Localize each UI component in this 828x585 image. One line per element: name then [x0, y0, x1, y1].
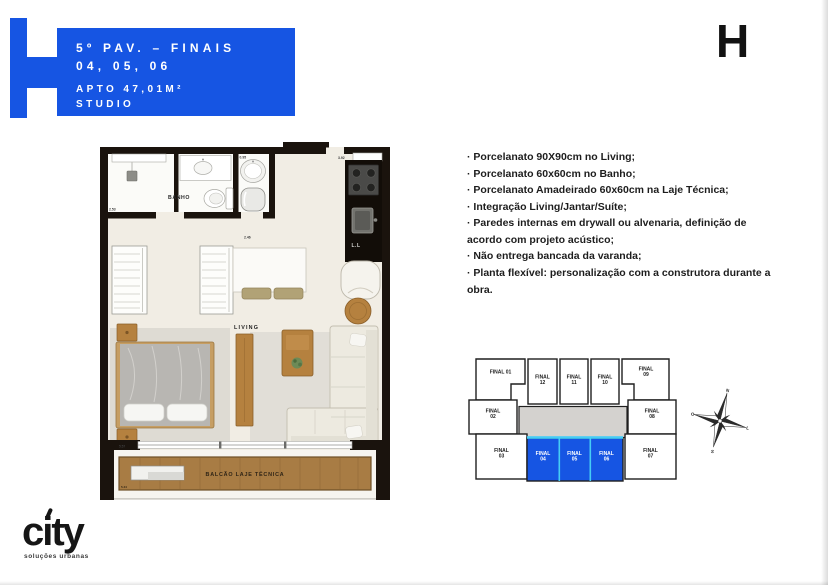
- keyplan-unit-final-11: FINAL11: [560, 359, 588, 404]
- spec-item: · Integração Living/Jantar/Suíte;: [467, 199, 779, 216]
- lounge-chair: [341, 261, 380, 299]
- apartment-area: APTO 47,01M²: [76, 82, 295, 97]
- shower-ledge: [112, 154, 166, 162]
- spec-item: · Não entrega bancada da varanda;: [467, 248, 779, 265]
- balcony-label: BALCÃO LAJE TÉCNICA: [206, 470, 285, 478]
- floorplan: BANHO L.L: [100, 142, 390, 507]
- svg-text:FINAL 01: FINAL 01: [490, 370, 512, 376]
- living-label: LIVING: [234, 325, 259, 331]
- apartment-type: STUDIO: [76, 97, 295, 112]
- page-edge-shadow-bottom: [0, 581, 828, 585]
- bath-sink-icon: [180, 156, 231, 181]
- pillow: [167, 404, 207, 421]
- nightstand: [117, 324, 137, 341]
- dining-chair: [242, 288, 271, 299]
- spec-list: · Porcelanato 90X90cm no Living; · Porce…: [467, 149, 779, 298]
- compass-south-label: S: [710, 449, 714, 455]
- dim-bath: 2.53: [109, 208, 116, 212]
- keyplan-unit-final-08: FINAL08: [628, 400, 676, 434]
- water-heater-icon: [241, 188, 265, 211]
- spec-item: · Planta flexível: personalização com a …: [467, 265, 779, 298]
- bathroom-label: BANHO: [168, 195, 190, 201]
- h-logo: H: [716, 18, 749, 64]
- pillow: [124, 404, 164, 421]
- spec-item: · Porcelanato 90X90cm no Living;: [467, 149, 779, 166]
- keyplan-corridor: [519, 407, 627, 438]
- kitchen-counter: L.L: [345, 160, 382, 262]
- units-title: 04, 05, 06: [76, 57, 295, 75]
- spec-item: · Porcelanato 60x60cm no Banho;: [467, 166, 779, 183]
- page: 5º PAV. – FINAIS 04, 05, 06 APTO 47,01M²…: [0, 0, 828, 585]
- city-logo-tagline: soluções urbanas: [22, 553, 142, 560]
- keyplan-divider: [590, 438, 592, 481]
- living-window: [100, 440, 390, 450]
- dim-laundry-bottom: 2.46: [244, 236, 251, 240]
- dining-table: [233, 248, 306, 292]
- city-logo-text: city: [22, 512, 142, 552]
- tv-console: [236, 334, 253, 426]
- throw-pillow: [345, 425, 363, 439]
- keyplan-unit-final-07: FINAL07: [625, 434, 676, 479]
- keyplan-unit-final-09: FINAL09: [622, 359, 669, 400]
- keyplan: FINAL 01 FINAL12 FINAL11 FINAL10 FINAL09…: [465, 351, 680, 486]
- city-h-mark-bar: [10, 18, 27, 118]
- cooktop-icon: [349, 165, 379, 195]
- keyplan-unit-final-03: FINAL03: [476, 434, 527, 479]
- round-table: [345, 298, 371, 324]
- page-edge-shadow-right: [821, 0, 828, 585]
- toilet-icon: [204, 188, 233, 209]
- dining-chair: [274, 288, 303, 299]
- laundry-basin-icon: [241, 160, 266, 183]
- keyplan-unit-final-10: FINAL10: [591, 359, 619, 404]
- spec-item: · Porcelanato Amadeirado 60x60cm na Laje…: [467, 182, 779, 199]
- floor-title: 5º PAV. – FINAIS: [76, 39, 295, 57]
- dim-kitchen: 3.92: [338, 156, 345, 160]
- keyplan-highlight-topstrip: [527, 436, 623, 439]
- compass-north-label: N: [725, 388, 729, 393]
- balcony: BALCÃO LAJE TÉCNICA: [100, 450, 390, 500]
- title-card: 5º PAV. – FINAIS 04, 05, 06 APTO 47,01M²…: [57, 28, 295, 116]
- coffee-table: [282, 330, 313, 376]
- city-h-mark-stub: [26, 57, 58, 88]
- compass-east-label: L: [746, 425, 750, 431]
- throw-pillow: [349, 333, 367, 347]
- dim-balcony: 5.44: [121, 485, 127, 489]
- keyplan-unit-final-02: FINAL02: [469, 400, 517, 434]
- kitchen-ledge: [353, 153, 382, 161]
- entry-door: [283, 142, 329, 148]
- dim-laundry-top: 0.95: [240, 156, 247, 160]
- ac-unit-icon: [131, 466, 184, 480]
- dim-living: 5.57: [119, 445, 125, 449]
- city-logo: city soluções urbanas: [22, 512, 142, 560]
- bed: [116, 342, 214, 428]
- keyplan-unit-final-01: FINAL 01: [476, 359, 525, 400]
- wardrobe-left: [112, 246, 147, 314]
- keyplan-unit-final-12: FINAL12: [528, 359, 557, 404]
- wardrobe-center: [200, 246, 233, 314]
- laundry-label: L.L: [352, 243, 361, 249]
- keyplan-divider: [559, 438, 561, 481]
- spec-item: · Paredes internas em drywall ou alvenar…: [467, 215, 779, 248]
- compass-rose-icon: N L S O: [690, 388, 750, 456]
